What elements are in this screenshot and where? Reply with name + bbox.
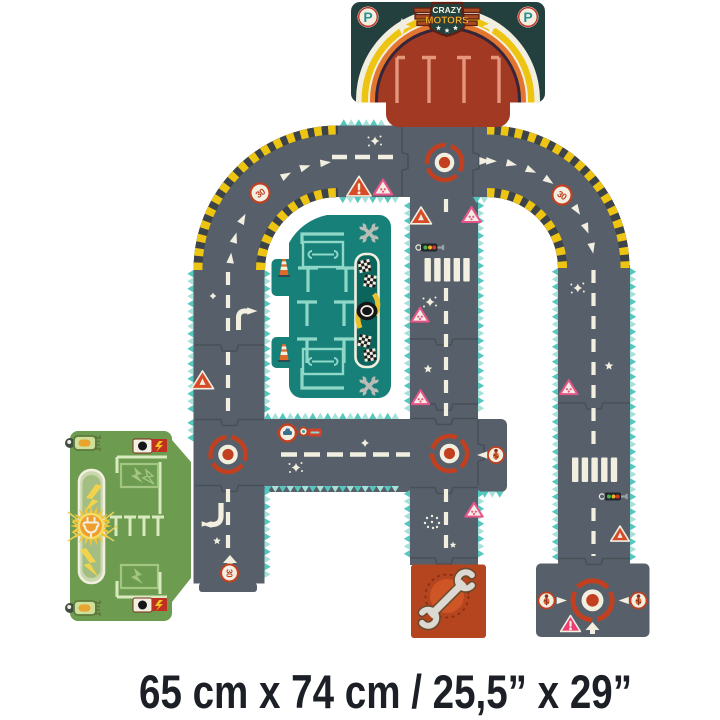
svg-text:65 cm x 74 cm / 25,5” x 29”: 65 cm x 74 cm / 25,5” x 29” [139,665,632,718]
svg-text:P: P [363,9,372,25]
svg-text:30: 30 [224,569,233,578]
svg-text:CRAZY: CRAZY [432,5,462,15]
svg-text:P: P [523,9,532,25]
svg-text:MOTORS: MOTORS [425,16,469,27]
